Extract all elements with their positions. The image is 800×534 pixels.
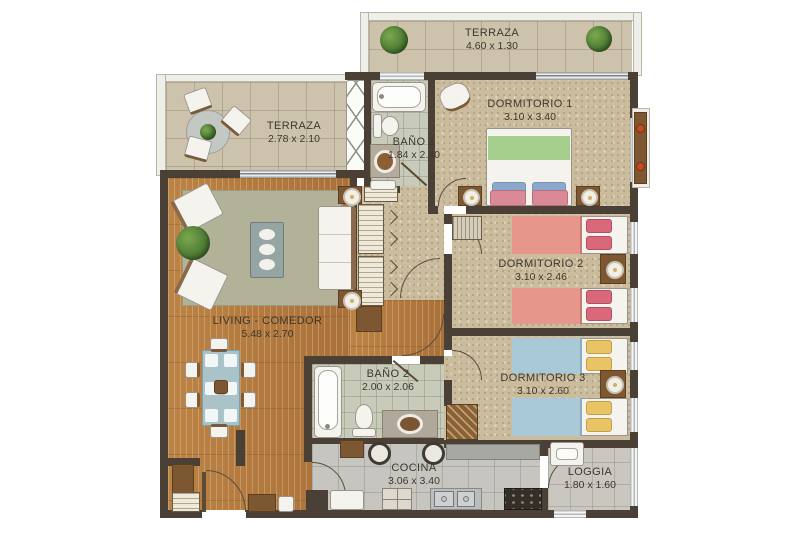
wall [630, 182, 638, 222]
room-name: LIVING - COMEDOR [185, 315, 350, 327]
wall [304, 356, 392, 364]
room-label-loggia: LOGGIA 1.80 x 1.60 [544, 466, 636, 491]
laundry-tub-inner [556, 448, 578, 460]
toilet [355, 404, 373, 429]
room-dims: 1.80 x 1.60 [544, 479, 636, 491]
lamp [463, 189, 480, 206]
terrace-left-railing-top [156, 74, 348, 82]
sink [397, 414, 423, 434]
pedestal [278, 496, 294, 512]
lamp [606, 261, 624, 279]
bed-blanket-green [488, 136, 570, 160]
bathtub-inner [318, 370, 338, 430]
pantry-closet [446, 404, 478, 440]
wall [586, 510, 638, 518]
sofa [318, 206, 356, 290]
window [630, 398, 638, 432]
room-name: DORMITORIO 1 [455, 98, 605, 110]
terrace-top-railing [360, 12, 642, 21]
wall [444, 328, 638, 336]
pillow-pink [586, 236, 612, 250]
dining-chair [185, 392, 200, 408]
bath-mat [370, 180, 396, 190]
flower-pot [636, 124, 645, 133]
wall [424, 72, 536, 80]
bed-blanket-blue [512, 398, 582, 436]
room-dims: 1.84 x 2.40 [376, 149, 452, 161]
pillow-pink [586, 290, 612, 304]
room-name: DORMITORIO 2 [476, 258, 606, 270]
room-label-bano2: BAÑO 2 2.00 x 2.06 [340, 368, 436, 393]
room-name: COCINA [355, 462, 473, 474]
window [380, 72, 424, 80]
terrace-left-railing-side [156, 74, 166, 176]
wall [444, 380, 452, 406]
room-name: BAÑO 2 [340, 368, 436, 380]
sliding-door [240, 170, 336, 178]
shoe-shelf [172, 492, 200, 512]
wall [345, 72, 380, 80]
room-label-bano1: BAÑO 1 1.84 x 2.40 [376, 136, 452, 161]
wall [304, 356, 312, 444]
pillow-yellow [586, 357, 612, 371]
room-dims: 3.10 x 2.46 [476, 271, 606, 283]
room-label-cocina: COCINA 3.06 x 3.40 [355, 462, 473, 487]
wall [630, 370, 638, 398]
room-dims: 3.06 x 3.40 [355, 475, 473, 487]
pillow-yellow [586, 340, 612, 354]
room-dims: 2.00 x 2.06 [340, 381, 436, 393]
wall [444, 254, 452, 336]
terrace-top-railing-left [360, 12, 369, 76]
bedroom2-closet [452, 216, 482, 240]
pillow-pink [586, 307, 612, 321]
centerpiece [214, 380, 228, 394]
room-name: TERRAZA [400, 27, 584, 39]
room-name: LOGGIA [544, 466, 636, 478]
placemat [224, 409, 237, 422]
pillow-pink [490, 190, 526, 206]
terrace-top-railing-right [633, 12, 642, 76]
plant [176, 226, 210, 260]
placemat [205, 409, 218, 422]
pillow-yellow [586, 401, 612, 415]
drain [441, 496, 447, 502]
room-dims: 3.10 x 2.60 [478, 385, 608, 397]
room-name: TERRAZA [244, 120, 344, 132]
lamp [606, 376, 624, 394]
placemat [224, 354, 237, 367]
wall [466, 206, 638, 214]
room-dims: 2.78 x 2.10 [244, 133, 344, 145]
dining-chair [185, 362, 200, 378]
coffee-table-bowl [259, 229, 275, 240]
planter-box [634, 112, 647, 184]
faucet [379, 94, 384, 99]
room-label-terraza-left: TERRAZA 2.78 x 2.10 [244, 120, 344, 145]
pillow-yellow [586, 418, 612, 432]
room-dims: 3.10 x 3.40 [455, 111, 605, 123]
wall [444, 214, 452, 224]
room-label-terraza-top: TERRAZA 4.60 x 1.30 [400, 27, 584, 52]
lamp [343, 292, 361, 310]
dining-chair [210, 424, 228, 438]
dining-chair [241, 362, 256, 378]
plant [586, 26, 612, 52]
room-label-living: LIVING - COMEDOR 5.48 x 2.70 [185, 315, 350, 340]
coffee-table-bowl [259, 259, 275, 270]
room-name: BAÑO 1 [376, 136, 452, 148]
drain [463, 496, 469, 502]
bed-blanket-blue [512, 338, 582, 374]
bed-blanket-salmon [512, 288, 582, 324]
kitchen-cabinet [340, 440, 364, 458]
floor-plan: TERRAZA 4.60 x 1.30 TERRAZA 2.78 x 2.10 … [0, 0, 800, 534]
wall [444, 336, 452, 350]
wall [304, 444, 312, 462]
room-label-dormitorio2: DORMITORIO 2 3.10 x 2.46 [476, 258, 606, 283]
flower-pot [636, 162, 645, 171]
window [630, 222, 638, 254]
window [554, 510, 586, 518]
toilet [381, 116, 399, 136]
plant [200, 124, 216, 140]
wall [630, 254, 638, 288]
lamp [343, 188, 361, 206]
room-dims: 4.60 x 1.30 [400, 40, 584, 52]
kitchen-counter [446, 444, 540, 460]
bed-blanket-salmon [512, 216, 582, 254]
wall [428, 206, 438, 214]
toilet-tank [352, 428, 376, 437]
hall-closet [358, 204, 384, 254]
wall [540, 448, 548, 456]
faucet [325, 424, 330, 429]
room-label-dormitorio3: DORMITORIO 3 3.10 x 2.60 [478, 372, 608, 397]
window [630, 342, 638, 370]
wall [236, 430, 245, 466]
lamp [581, 189, 598, 206]
console-table [248, 494, 276, 512]
shaft-hatch [346, 80, 366, 172]
pillow-pink [532, 190, 568, 206]
room-dims: 5.48 x 2.70 [185, 328, 350, 340]
cabinet [382, 488, 412, 510]
fridge [330, 490, 364, 510]
pillow-pink [586, 219, 612, 233]
hall-cabinet [356, 306, 382, 332]
window [630, 288, 638, 322]
room-name: DORMITORIO 3 [478, 372, 608, 384]
dining-chair [241, 392, 256, 408]
room-label-dormitorio1: DORMITORIO 1 3.10 x 3.40 [455, 98, 605, 123]
wall [420, 356, 444, 364]
placemat [205, 354, 218, 367]
sliding-door [536, 72, 628, 80]
dining-chair [210, 338, 228, 352]
coffee-table-bowl [259, 244, 275, 255]
stove [504, 488, 542, 510]
